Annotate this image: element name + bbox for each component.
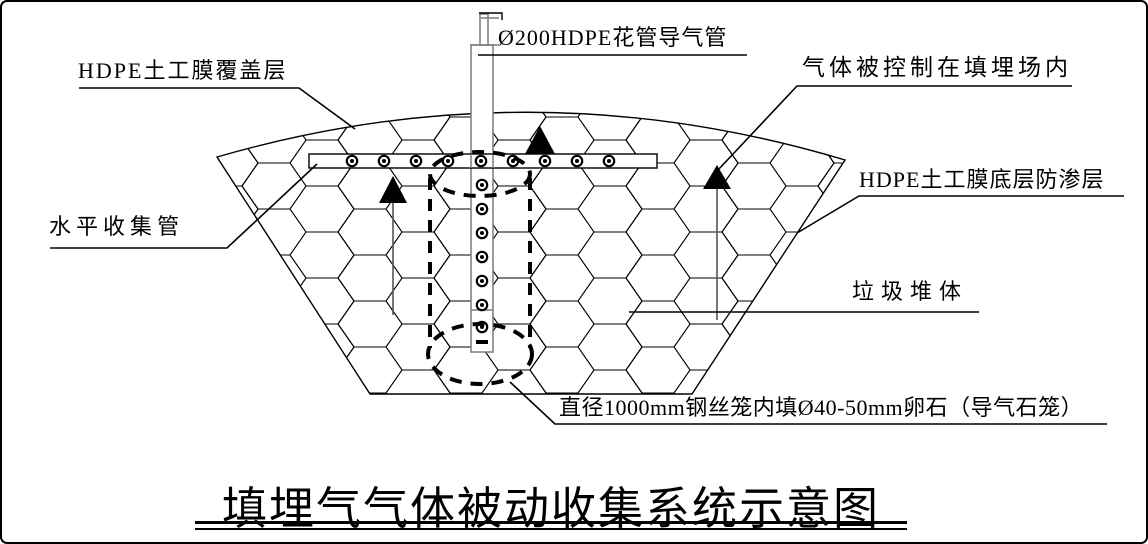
label-vent-pipe: Ø200HDPE花管导气管 [498, 25, 727, 50]
leader-cover-layer [79, 88, 355, 129]
label-waste-body: 垃圾堆体 [852, 279, 968, 304]
title-underline [195, 521, 907, 530]
landfill-gas-diagram: Ø200HDPE花管导气管 HDPE土工膜覆盖层 气体被控制在填埋场内 HDPE… [0, 0, 1148, 544]
label-cover-layer: HDPE土工膜覆盖层 [78, 58, 287, 83]
leader-liner-layer [797, 196, 1124, 233]
label-gas-contained: 气体被控制在填埋场内 [802, 55, 1072, 81]
label-horizontal-pipe: 水平收集管 [49, 214, 184, 239]
horizontal-pipe-perforations [347, 156, 614, 166]
label-liner-layer: HDPE土工膜底层防渗层 [859, 167, 1104, 192]
diagram-canvas [2, 2, 1148, 544]
label-stone-cage: 直径1000mm钢丝笼内填Ø40-50mm卵石（导气石笼） [559, 395, 1083, 420]
